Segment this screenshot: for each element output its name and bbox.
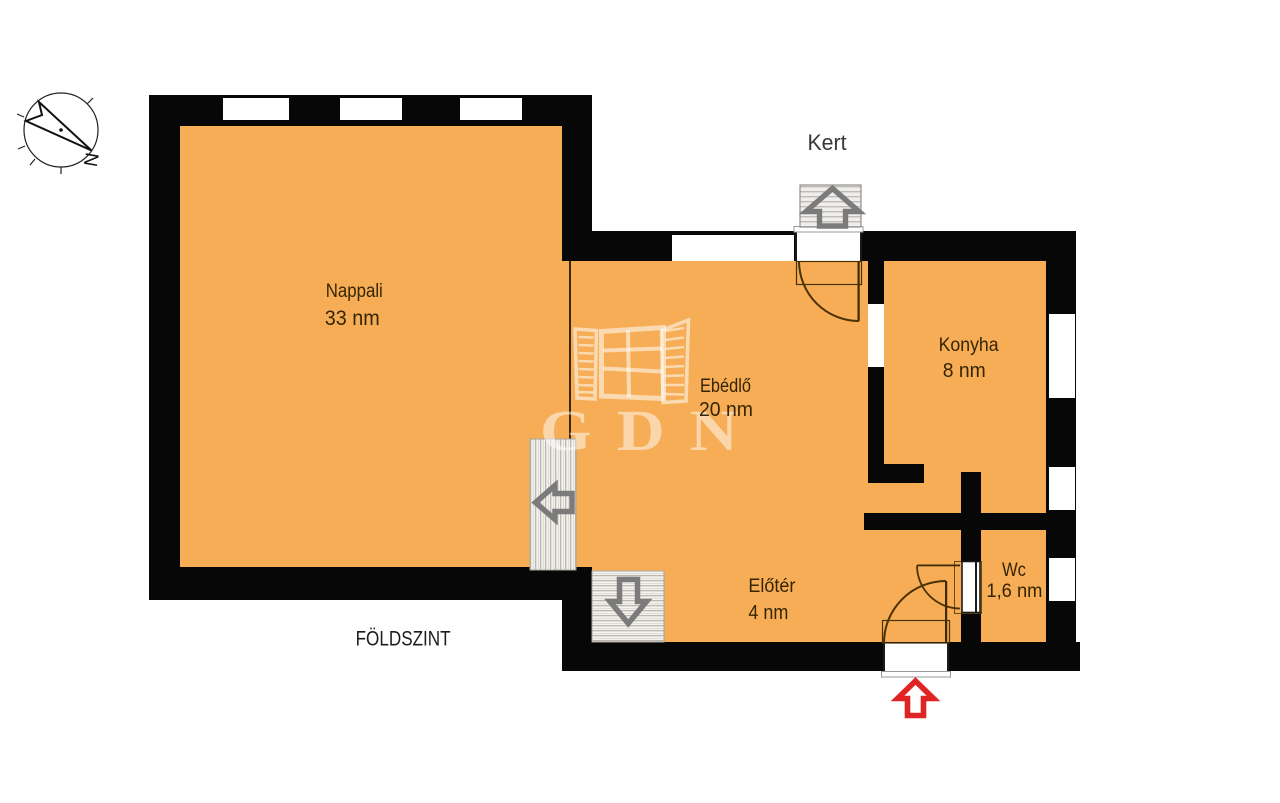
svg-text:Konyha: Konyha <box>939 335 999 356</box>
svg-text:Előtér: Előtér <box>748 576 796 597</box>
svg-text:FÖLDSZINT: FÖLDSZINT <box>356 627 451 651</box>
svg-text:Kert: Kert <box>808 130 847 155</box>
svg-text:4 nm: 4 nm <box>748 602 788 624</box>
svg-text:33 nm: 33 nm <box>325 307 380 330</box>
svg-text:8 nm: 8 nm <box>943 360 986 382</box>
svg-text:Ebédlő: Ebédlő <box>700 376 751 397</box>
svg-text:N: N <box>79 151 102 168</box>
svg-text:Wc: Wc <box>1002 560 1026 581</box>
svg-text:20 nm: 20 nm <box>699 399 753 421</box>
svg-text:1,6 nm: 1,6 nm <box>986 581 1042 602</box>
svg-text:Nappali: Nappali <box>326 281 383 302</box>
